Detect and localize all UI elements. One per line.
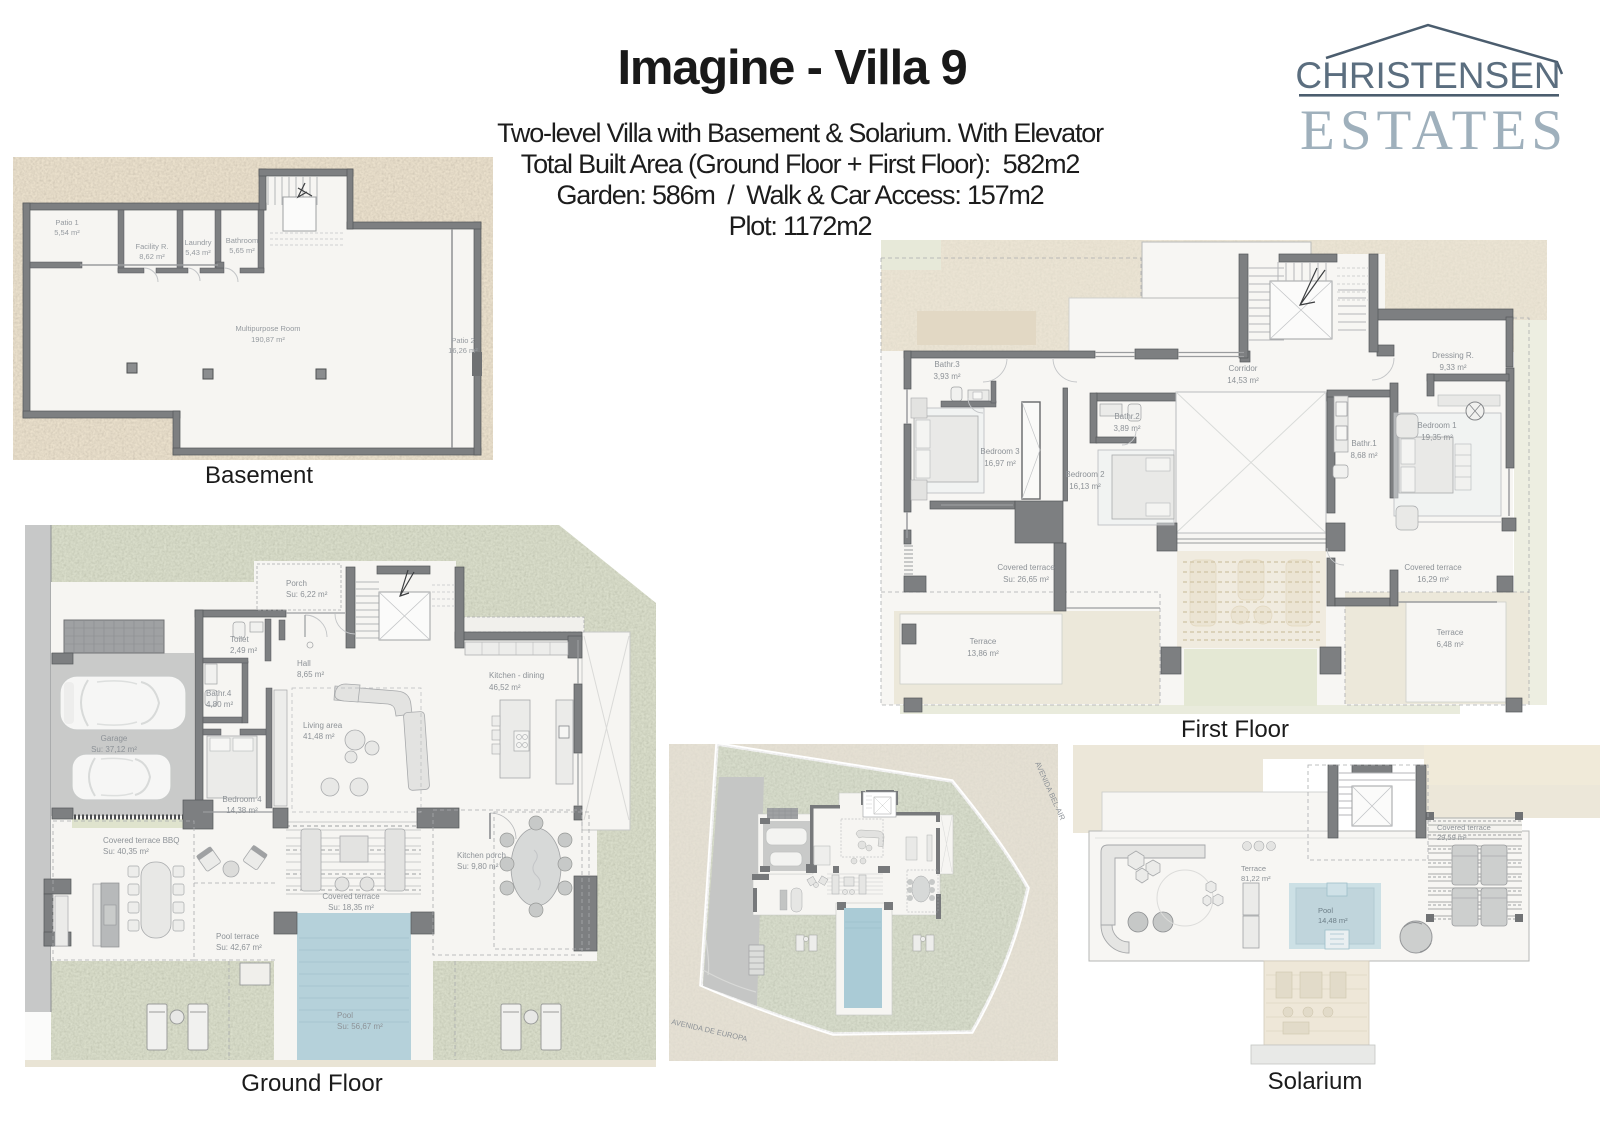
svg-text:Su: 6,22 m²: Su: 6,22 m² bbox=[286, 590, 328, 599]
svg-text:Dressing R.: Dressing R. bbox=[1432, 351, 1474, 360]
svg-text:Patio 2: Patio 2 bbox=[451, 336, 474, 345]
svg-text:3,93 m²: 3,93 m² bbox=[933, 372, 960, 381]
svg-text:14,38 m²: 14,38 m² bbox=[226, 806, 258, 815]
svg-text:Su: 18,35 m²: Su: 18,35 m² bbox=[328, 903, 374, 912]
svg-text:Bedroom 4: Bedroom 4 bbox=[222, 795, 262, 804]
svg-text:Pool: Pool bbox=[1318, 906, 1333, 915]
svg-text:13,86 m²: 13,86 m² bbox=[967, 649, 999, 658]
svg-text:190,87 m²: 190,87 m² bbox=[251, 335, 285, 344]
svg-text:Su: 37,12 m²: Su: 37,12 m² bbox=[91, 745, 137, 754]
svg-text:Bathr.3: Bathr.3 bbox=[934, 360, 960, 369]
svg-text:Porch: Porch bbox=[286, 579, 307, 588]
svg-text:Su: 26,65 m²: Su: 26,65 m² bbox=[1003, 575, 1049, 584]
svg-text:8,68 m²: 8,68 m² bbox=[1350, 451, 1377, 460]
svg-text:14,48 m²: 14,48 m² bbox=[1318, 916, 1348, 925]
svg-text:8,65 m²: 8,65 m² bbox=[297, 670, 324, 679]
svg-text:3,89 m²: 3,89 m² bbox=[1113, 424, 1140, 433]
svg-text:Facility R.: Facility R. bbox=[136, 242, 169, 251]
svg-text:Covered terrace BBQ: Covered terrace BBQ bbox=[103, 836, 179, 845]
svg-text:Kitchen - dining: Kitchen - dining bbox=[489, 671, 544, 680]
svg-text:41,48 m²: 41,48 m² bbox=[303, 732, 335, 741]
svg-text:29,59 m²: 29,59 m² bbox=[1437, 833, 1467, 842]
svg-text:46,52 m²: 46,52 m² bbox=[489, 683, 521, 692]
svg-text:16,26 m²: 16,26 m² bbox=[448, 346, 478, 355]
svg-text:Su: 40,35 m²: Su: 40,35 m² bbox=[103, 847, 149, 856]
svg-text:4,80 m²: 4,80 m² bbox=[206, 700, 233, 709]
svg-text:Su: 9,80 m²: Su: 9,80 m² bbox=[457, 862, 499, 871]
svg-text:Terrace: Terrace bbox=[970, 637, 997, 646]
svg-text:5,43 m²: 5,43 m² bbox=[185, 248, 211, 257]
svg-text:Multipurpose Room: Multipurpose Room bbox=[235, 324, 300, 333]
svg-text:Bedroom 2: Bedroom 2 bbox=[1065, 470, 1105, 479]
svg-text:Garage: Garage bbox=[101, 734, 128, 743]
svg-text:Covered terrace: Covered terrace bbox=[1437, 823, 1491, 832]
svg-text:Bathr.2: Bathr.2 bbox=[1114, 412, 1140, 421]
svg-text:14,53 m²: 14,53 m² bbox=[1227, 376, 1259, 385]
svg-text:Covered terrace: Covered terrace bbox=[997, 563, 1055, 572]
svg-text:6,48 m²: 6,48 m² bbox=[1436, 640, 1463, 649]
svg-text:Terrace: Terrace bbox=[1437, 628, 1464, 637]
svg-text:Toilet: Toilet bbox=[230, 635, 249, 644]
svg-text:Bathr.4: Bathr.4 bbox=[206, 689, 232, 698]
svg-text:Bedroom 1: Bedroom 1 bbox=[1417, 421, 1457, 430]
svg-text:Corridor: Corridor bbox=[1229, 364, 1258, 373]
svg-text:Bedroom 3: Bedroom 3 bbox=[980, 447, 1020, 456]
svg-text:16,97 m²: 16,97 m² bbox=[984, 459, 1016, 468]
svg-text:Covered terrace: Covered terrace bbox=[1404, 563, 1462, 572]
svg-text:Kitchen porch: Kitchen porch bbox=[457, 851, 506, 860]
svg-text:Su: 42,67 m²: Su: 42,67 m² bbox=[216, 943, 262, 952]
svg-text:Living area: Living area bbox=[303, 721, 343, 730]
svg-text:16,13 m²: 16,13 m² bbox=[1069, 482, 1101, 491]
svg-text:Pool terrace: Pool terrace bbox=[216, 932, 260, 941]
svg-text:Covered terrace: Covered terrace bbox=[322, 892, 380, 901]
svg-text:Pool: Pool bbox=[337, 1011, 353, 1020]
svg-text:2,49 m²: 2,49 m² bbox=[230, 646, 257, 655]
svg-text:19,35 m²: 19,35 m² bbox=[1421, 433, 1453, 442]
svg-text:Su: 56,67 m²: Su: 56,67 m² bbox=[337, 1022, 383, 1031]
svg-text:81,22 m²: 81,22 m² bbox=[1241, 874, 1271, 883]
svg-text:8,62 m²: 8,62 m² bbox=[139, 252, 165, 261]
svg-text:5,65 m²: 5,65 m² bbox=[229, 246, 255, 255]
svg-text:16,29 m²: 16,29 m² bbox=[1417, 575, 1449, 584]
svg-text:Hall: Hall bbox=[297, 659, 311, 668]
svg-text:Terrace: Terrace bbox=[1241, 864, 1266, 873]
svg-text:9,33 m²: 9,33 m² bbox=[1439, 363, 1466, 372]
svg-text:Bathr.1: Bathr.1 bbox=[1351, 439, 1377, 448]
